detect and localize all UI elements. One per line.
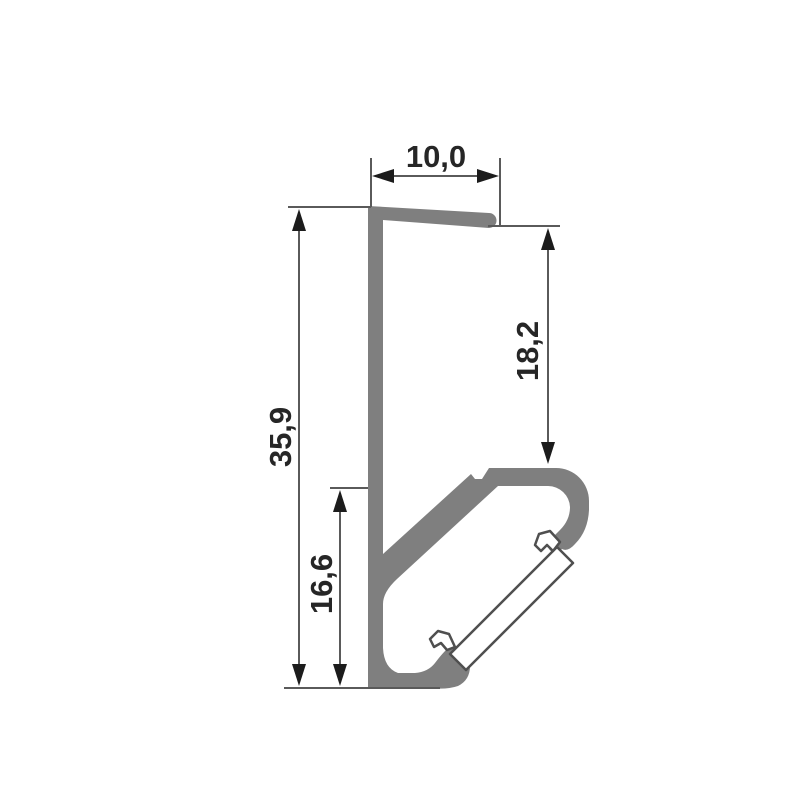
diffuser-cover-panel: [450, 547, 573, 670]
arrowhead-down-icon: [333, 664, 347, 686]
dimension-left-height: 35,9: [263, 207, 440, 688]
arrowhead-down-icon: [541, 442, 555, 464]
drawing-canvas: 10,0 18,2: [0, 0, 800, 800]
led-profile-technical-drawing: 10,0 18,2: [0, 0, 800, 800]
dimension-value-inner-height: 16,6: [304, 554, 339, 614]
diffuser-cover: [430, 531, 573, 670]
profile-body: [368, 206, 589, 689]
arrowhead-up-icon: [333, 490, 347, 512]
profile-cross-section: [368, 206, 589, 689]
arrowhead-right-icon: [477, 169, 499, 183]
arrowhead-up-icon: [541, 228, 555, 250]
arrowhead-up-icon: [292, 209, 306, 231]
arrowhead-down-icon: [292, 664, 306, 686]
dimension-value-right-height: 18,2: [510, 321, 545, 381]
dimension-inner-height: 16,6: [304, 488, 368, 686]
dimension-value-left-height: 35,9: [263, 407, 298, 467]
diffuser-bottom-clip: [430, 631, 455, 650]
arrowhead-left-icon: [372, 169, 394, 183]
dimension-value-top-width: 10,0: [406, 139, 466, 174]
dimension-right-height: 18,2: [488, 226, 560, 464]
